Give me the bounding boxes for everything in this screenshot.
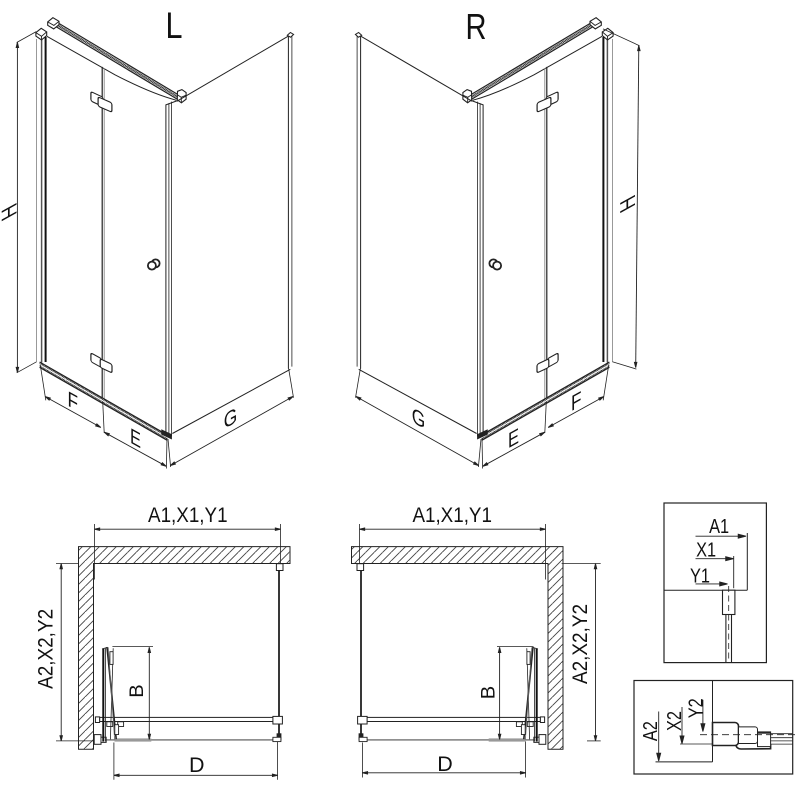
svg-text:A2,X2,Y2: A2,X2,Y2 xyxy=(33,609,57,689)
svg-text:D: D xyxy=(189,753,205,777)
svg-text:A2,X2,Y2: A2,X2,Y2 xyxy=(568,604,592,684)
svg-text:X2: X2 xyxy=(663,711,686,731)
svg-text:A2: A2 xyxy=(639,721,662,741)
svg-text:B: B xyxy=(126,684,148,698)
svg-text:R: R xyxy=(466,6,487,47)
svg-text:B: B xyxy=(477,686,499,700)
svg-text:X1: X1 xyxy=(696,539,716,562)
svg-text:A1,X1,Y1: A1,X1,Y1 xyxy=(412,503,492,527)
svg-text:L: L xyxy=(166,4,183,46)
svg-text:A1: A1 xyxy=(709,515,729,538)
svg-text:Y2: Y2 xyxy=(685,698,708,718)
svg-text:A1,X1,Y1: A1,X1,Y1 xyxy=(148,503,228,527)
svg-text:D: D xyxy=(437,752,453,776)
svg-text:Y1: Y1 xyxy=(690,565,710,588)
